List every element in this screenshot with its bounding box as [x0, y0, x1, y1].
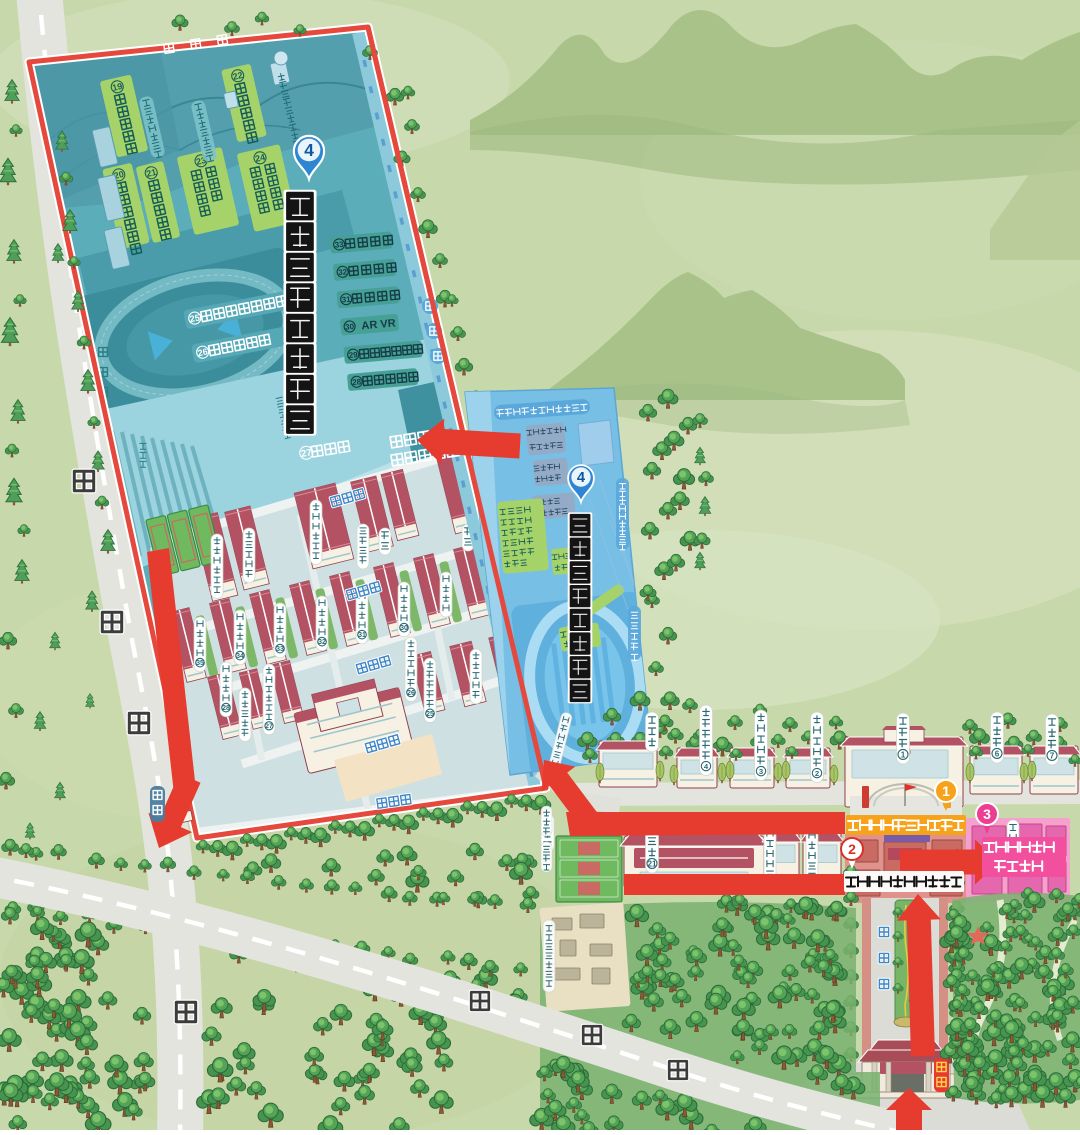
svg-text:3: 3	[983, 806, 991, 822]
svg-text:29: 29	[348, 350, 358, 360]
svg-text:32: 32	[318, 639, 326, 646]
svg-text:4: 4	[704, 762, 709, 771]
svg-text:33: 33	[276, 646, 284, 653]
svg-text:35: 35	[196, 660, 204, 667]
svg-text:31: 31	[341, 295, 351, 305]
svg-text:1: 1	[942, 783, 950, 799]
svg-text:25: 25	[426, 711, 434, 718]
svg-text:31: 31	[358, 632, 366, 639]
svg-text:27: 27	[265, 723, 273, 730]
svg-text:26: 26	[197, 346, 209, 358]
svg-text:28: 28	[352, 377, 362, 387]
svg-text:32: 32	[338, 267, 348, 277]
svg-text:28: 28	[222, 705, 230, 712]
svg-text:30: 30	[345, 322, 355, 332]
svg-text:2: 2	[848, 841, 856, 857]
svg-text:34: 34	[236, 653, 244, 660]
svg-text:1: 1	[901, 750, 906, 759]
svg-text:30: 30	[400, 625, 408, 632]
svg-text:26: 26	[407, 690, 415, 697]
svg-text:7: 7	[1050, 751, 1055, 760]
svg-text:25: 25	[189, 312, 201, 324]
svg-text:3: 3	[759, 767, 763, 776]
svg-text:21: 21	[647, 859, 657, 868]
svg-text:33: 33	[334, 240, 344, 250]
svg-text:6: 6	[995, 749, 1000, 758]
svg-text:2: 2	[815, 769, 819, 778]
svg-text:27: 27	[300, 447, 312, 460]
